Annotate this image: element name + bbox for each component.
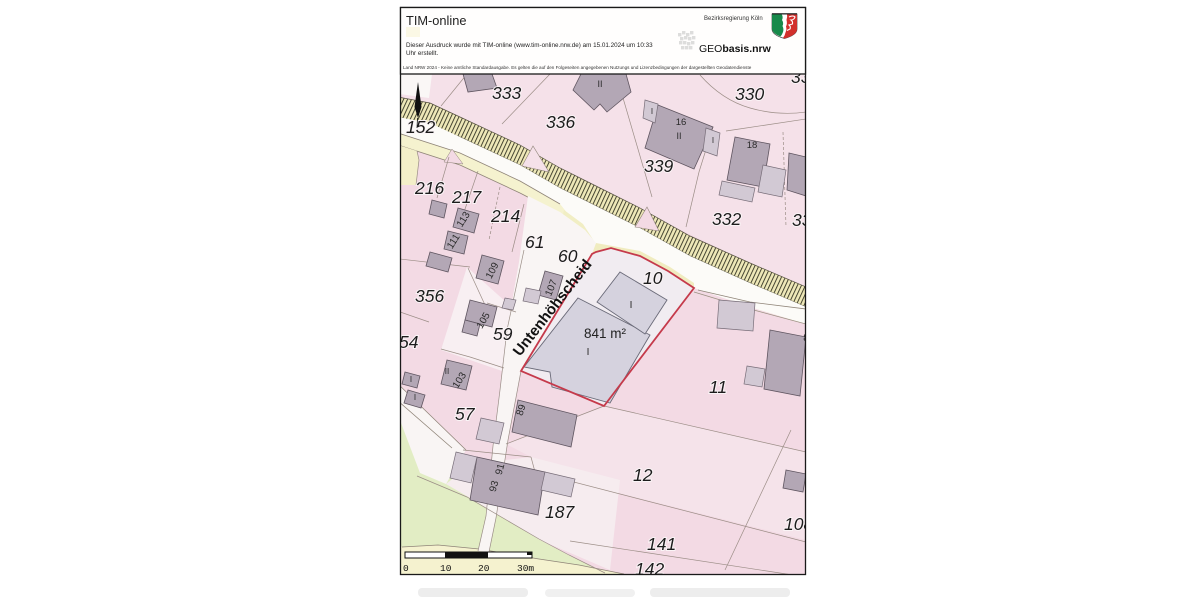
svg-text:61: 61: [525, 232, 544, 252]
svg-text:Dieser Ausdruck wurde mit TIM-: Dieser Ausdruck wurde mit TIM-online (ww…: [406, 42, 653, 49]
svg-text:11: 11: [709, 377, 727, 397]
svg-text:214: 214: [490, 206, 520, 226]
svg-text:57: 57: [455, 404, 476, 424]
svg-text:54: 54: [399, 332, 419, 352]
svg-text:I: I: [651, 107, 653, 116]
svg-text:II: II: [676, 131, 681, 141]
svg-text:10: 10: [643, 268, 663, 288]
svg-text:II: II: [597, 79, 602, 89]
svg-text:II: II: [445, 367, 449, 376]
svg-text:Land NRW 2024 - Keine amtliche: Land NRW 2024 - Keine amtliche Standarda…: [403, 65, 752, 70]
svg-text:18: 18: [747, 140, 758, 151]
svg-text:841 m²: 841 m²: [584, 326, 627, 341]
svg-text:TIM-online: TIM-online: [406, 13, 466, 28]
svg-text:356: 356: [415, 286, 444, 306]
svg-text:0: 0: [403, 563, 409, 574]
svg-text:10: 10: [440, 563, 452, 574]
svg-text:Bezirksregierung Köln: Bezirksregierung Köln: [704, 16, 763, 22]
svg-text:333: 333: [492, 83, 521, 103]
svg-text:I: I: [414, 393, 416, 402]
svg-text:141: 141: [647, 534, 676, 554]
svg-text:I: I: [712, 136, 714, 145]
svg-text:GEObasis.nrw: GEObasis.nrw: [699, 43, 772, 55]
svg-text:60: 60: [558, 246, 578, 266]
svg-text:332: 332: [712, 209, 741, 229]
svg-text:336: 336: [546, 112, 575, 132]
svg-text:12: 12: [633, 465, 653, 485]
svg-text:59: 59: [493, 324, 513, 344]
svg-text:152: 152: [406, 117, 435, 137]
svg-text:217: 217: [451, 187, 482, 207]
svg-text:30m: 30m: [517, 563, 534, 574]
svg-text:216: 216: [414, 178, 444, 198]
svg-text:330: 330: [735, 84, 764, 104]
svg-text:I: I: [630, 300, 633, 311]
svg-text:Uhr erstellt.: Uhr erstellt.: [406, 50, 438, 57]
svg-text:339: 339: [644, 156, 673, 176]
svg-text:187: 187: [545, 502, 575, 522]
svg-text:20: 20: [478, 563, 490, 574]
svg-text:16: 16: [676, 117, 687, 128]
svg-text:I: I: [410, 375, 412, 384]
svg-text:I: I: [587, 347, 590, 358]
